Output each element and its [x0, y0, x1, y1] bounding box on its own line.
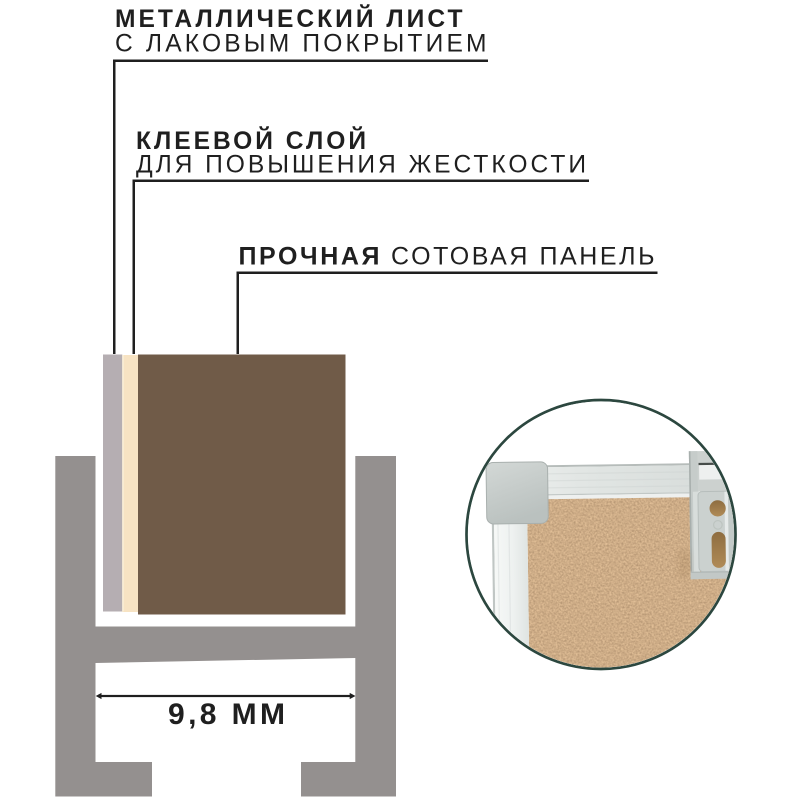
svg-text:С ЛАКОВЫМ ПОКРЫТИЕМ: С ЛАКОВЫМ ПОКРЫТИЕМ — [115, 31, 487, 58]
svg-text:МЕТАЛЛИЧЕСКИЙ ЛИСТ: МЕТАЛЛИЧЕСКИЙ ЛИСТ — [115, 5, 463, 33]
svg-text:СОТОВАЯ ПАНЕЛЬ: СОТОВАЯ ПАНЕЛЬ — [391, 243, 655, 271]
svg-text:9,8 ММ: 9,8 ММ — [168, 698, 285, 731]
svg-text:ДЛЯ ПОВЫШЕНИЯ ЖЕСТКОСТИ: ДЛЯ ПОВЫШЕНИЯ ЖЕСТКОСТИ — [136, 152, 586, 179]
svg-text:ПРОЧНАЯ: ПРОЧНАЯ — [239, 243, 380, 271]
